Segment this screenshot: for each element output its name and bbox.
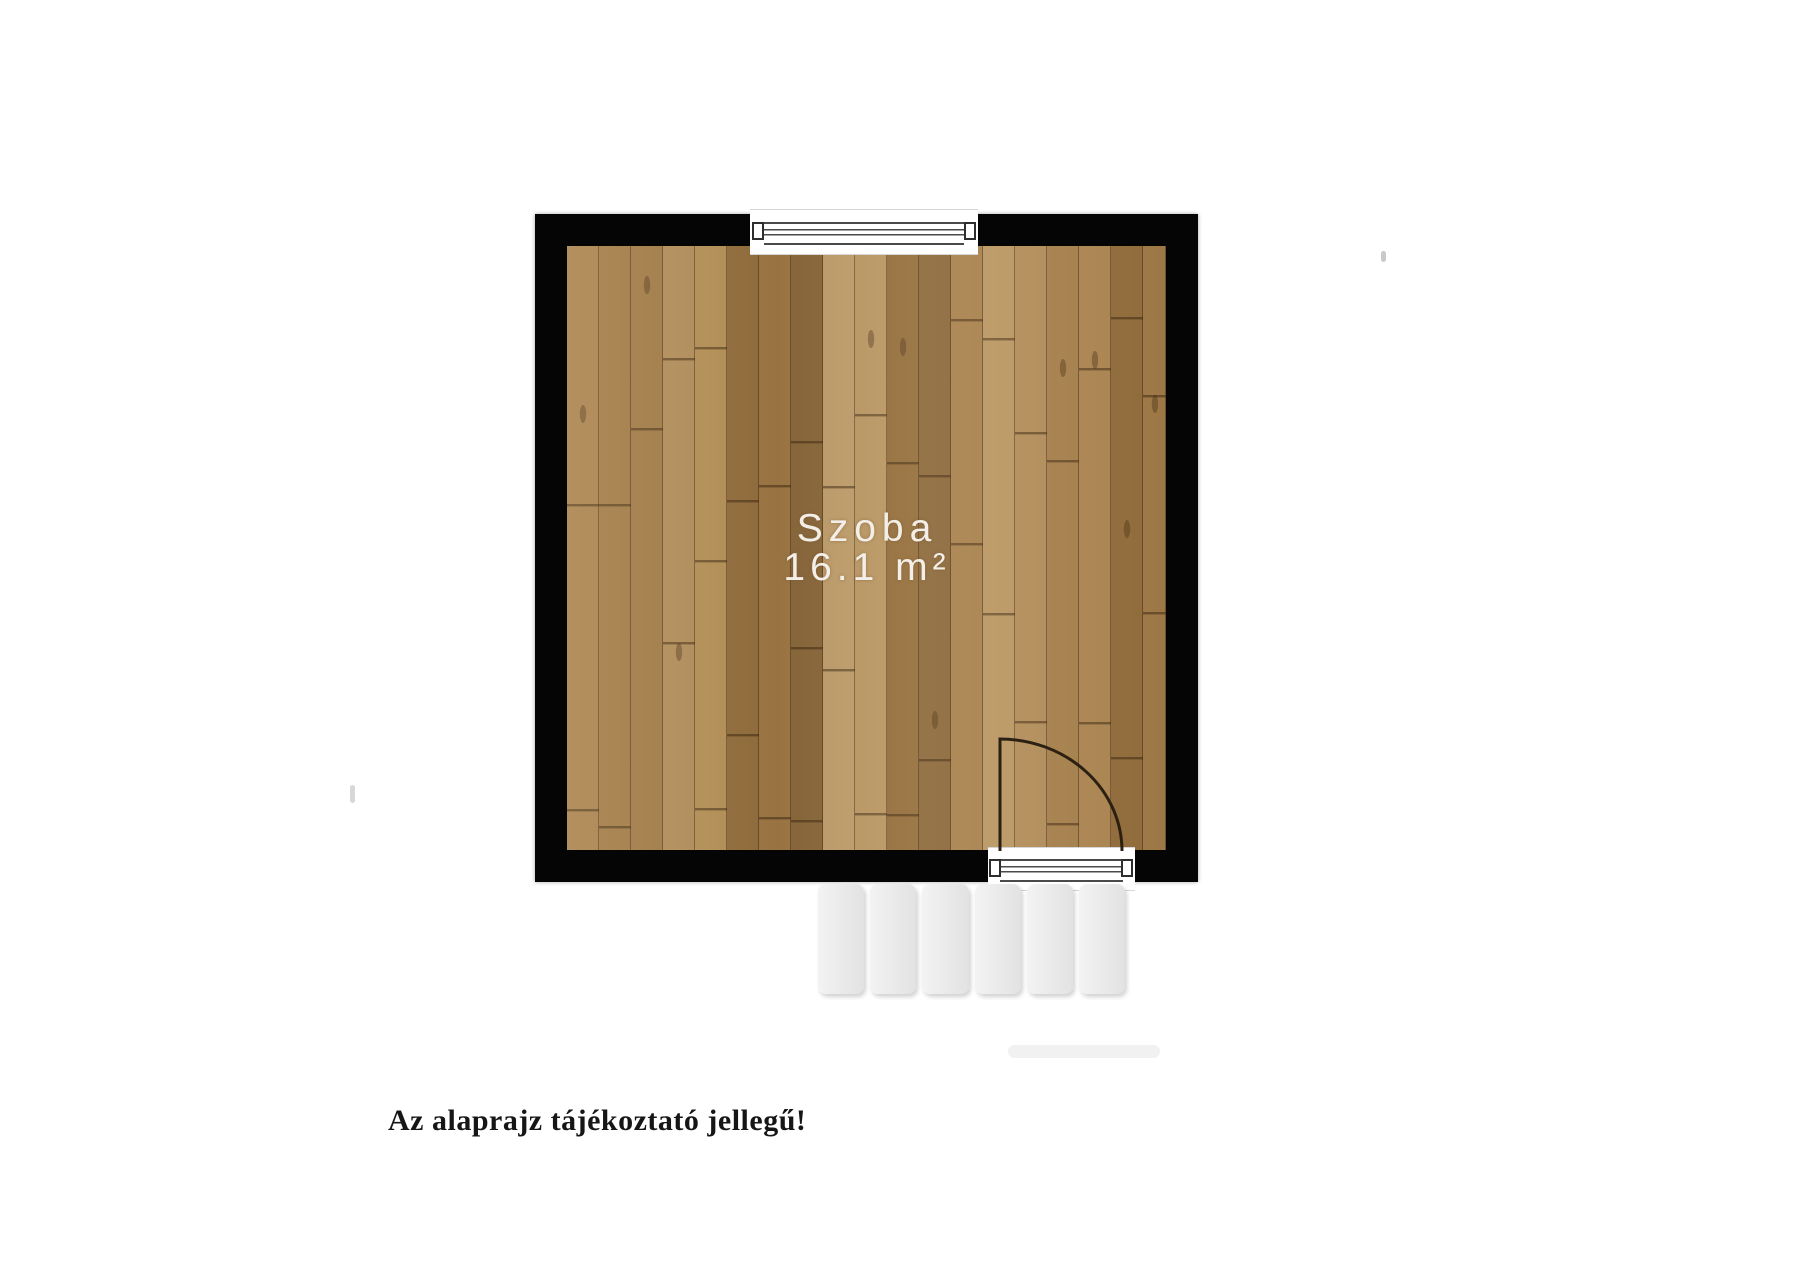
door-end-cap-right	[1121, 859, 1133, 877]
artifact-mark	[1008, 1045, 1160, 1058]
step	[1079, 884, 1125, 994]
window-glazing-lines	[764, 222, 964, 245]
door-threshold-lines	[1000, 859, 1123, 882]
step	[975, 884, 1021, 994]
floorplan-image: Szoba 16.1 m² Az alaprajz tájékoztató je…	[0, 0, 1809, 1280]
stairs	[818, 884, 1125, 994]
door-end-cap-left	[989, 859, 1001, 877]
artifact-mark	[1381, 251, 1386, 262]
room-area-label: 16.1 m²	[783, 549, 950, 587]
step	[818, 884, 864, 994]
window-end-cap-left	[752, 222, 764, 240]
room-label: Szoba	[783, 509, 950, 549]
disclaimer-text: Az alaprajz tájékoztató jellegű!	[388, 1104, 806, 1138]
step	[922, 884, 968, 994]
artifact-mark	[350, 785, 355, 803]
room-label-group: Szoba 16.1 m²	[783, 509, 950, 587]
window-end-cap-right	[964, 222, 976, 240]
step	[870, 884, 916, 994]
step	[1027, 884, 1073, 994]
window-fixture	[750, 209, 978, 255]
